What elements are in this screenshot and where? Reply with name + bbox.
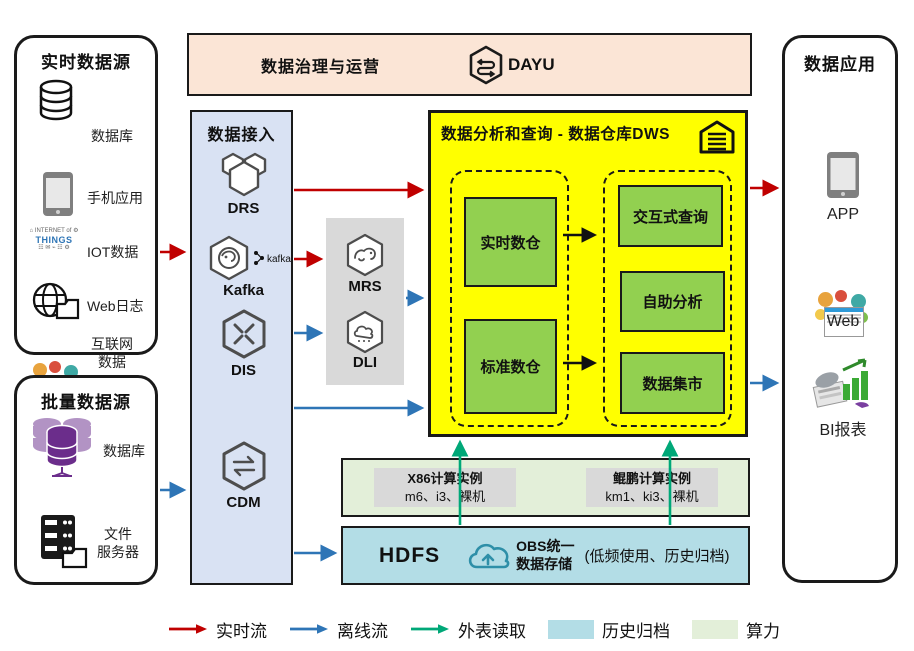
realtime-source-label: IOT数据 [87,242,138,262]
kafka-logo-icon: kafka [252,250,294,266]
history-archive-swatch [548,620,594,639]
dws-self-service-analysis: 自助分析 [620,271,725,332]
dws-warehouse-group: 实时数仓 标准数仓 [450,170,569,427]
storage-note: (低频使用、历史归档) [585,545,730,566]
storage-panel: HDFS OBS统一 数据存储 (低频使用、历史归档) [341,526,750,585]
legend-item-compute: 算力 [692,617,780,642]
web-log-icon [31,280,81,322]
x86-instance-box: X86计算实例 m6、i3、裸机 [374,468,516,507]
batch-sources-panel: 批量数据源 数据库 [14,375,158,585]
kafka-hexagon-icon [207,234,251,282]
iot-wordcloud-icon: ⌂ INTERNET of ⚙ THINGS ☷ ✉ ⌁ ☷ ⚙ [27,228,81,252]
realtime-source-label: 互联网 数据 [91,336,133,371]
hdfs-label: HDFS [379,544,440,568]
database-icon [34,78,78,124]
obs-storage-label: OBS统一 数据存储 [516,538,574,573]
red-arrow-icon [168,623,208,635]
governance-banner: 数据治理与运营 DAYU [187,33,752,96]
app-label: APP [785,206,901,224]
bi-report-label: BI报表 [785,416,901,440]
kunpeng-instance-title: 鲲鹏计算实例 [586,470,718,488]
dayu-label: DAYU [508,55,555,75]
architecture-diagram: 实时数据源 数据库 手机应用 ⌂ INTERNET of ⚙ THINGS ☷ … [0,0,914,651]
file-server-icon [39,513,89,569]
realtime-sources-panel: 实时数据源 数据库 手机应用 ⌂ INTERNET of ⚙ THINGS ☷ … [14,35,158,355]
dli-hexagon-icon [345,310,385,354]
dws-panel: 数据分析和查询 - 数据仓库DWS 实时数仓 标准数仓 交互式查询 自助分析 数… [428,110,748,437]
compute-panel: X86计算实例 m6、i3、裸机 鲲鹏计算实例 km1、ki3、裸机 [341,458,750,517]
mobile-phone-icon [826,151,860,199]
x86-instance-types: m6、i3、裸机 [374,488,516,506]
dws-standard-warehouse: 标准数仓 [464,319,557,414]
applications-title: 数据应用 [785,50,895,75]
batch-source-label: 文件 服务器 [97,526,139,561]
green-arrow-icon [410,623,450,635]
legend-item-offline: 离线流 [289,617,388,642]
drs-hexagon-icon [219,150,269,200]
governance-title: 数据治理与运营 [261,53,380,77]
dayu-hexagon-icon [468,45,504,85]
legend-item-realtime: 实时流 [168,617,267,642]
dis-hexagon-icon [220,308,268,360]
cdm-label: CDM [192,494,295,511]
ingestion-title: 数据接入 [192,121,291,145]
processing-panel: MRS DLI [326,218,404,385]
blue-arrow-icon [289,623,329,635]
dws-interactive-query: 交互式查询 [618,185,723,247]
ingestion-panel: 数据接入 DRS kafka Kafka DIS [190,110,293,585]
legend: 实时流 离线流 外表读取 历史归档 算力 [168,615,780,643]
kafka-label: Kafka [192,282,295,299]
bi-report-icon [811,358,875,410]
batch-sources-title: 批量数据源 [17,388,155,413]
mrs-label: MRS [326,278,404,295]
realtime-source-label: 数据库 [91,126,133,146]
batch-source-label: 数据库 [103,441,145,461]
compute-swatch [692,620,738,639]
obs-cloud-icon [466,540,510,572]
mrs-hexagon-icon [345,233,385,277]
dws-realtime-warehouse: 实时数仓 [464,197,557,287]
legend-item-history-archive: 历史归档 [548,617,670,642]
dws-query-group: 交互式查询 自助分析 数据集市 [603,170,732,427]
applications-panel: 数据应用 APP Web [782,35,898,583]
cdm-hexagon-icon [220,440,268,492]
x86-instance-title: X86计算实例 [374,470,516,488]
legend-item-external-read: 外表读取 [410,617,526,642]
mobile-phone-icon [42,171,74,217]
realtime-source-label: 手机应用 [87,188,143,208]
realtime-source-label: Web日志 [87,296,144,316]
svg-text:kafka: kafka [267,254,291,265]
drs-label: DRS [192,200,295,217]
kunpeng-instance-types: km1、ki3、裸机 [586,488,718,506]
kunpeng-instance-box: 鲲鹏计算实例 km1、ki3、裸机 [586,468,718,507]
dli-label: DLI [326,354,404,371]
database-cluster-icon [31,416,93,480]
dis-label: DIS [192,362,295,379]
web-label: Web [785,313,901,331]
dws-title: 数据分析和查询 - 数据仓库DWS [441,122,670,144]
dws-data-mart: 数据集市 [620,352,725,414]
realtime-sources-title: 实时数据源 [17,48,155,73]
warehouse-icon [697,119,737,155]
